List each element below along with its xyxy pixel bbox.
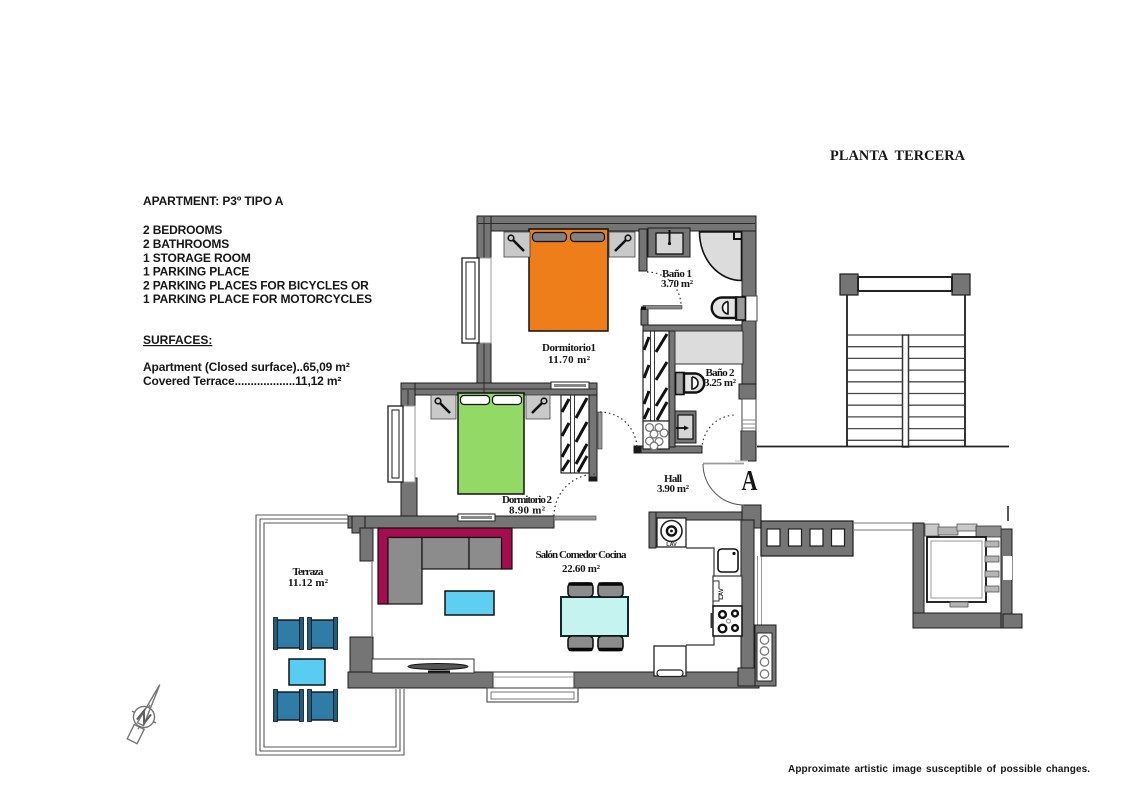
svg-text:SURFACES:: SURFACES:: [143, 333, 212, 347]
svg-text:2 BATHROOMS: 2 BATHROOMS: [143, 237, 229, 251]
svg-text:Salón Comedor Cocina: Salón Comedor Cocina: [536, 549, 628, 561]
svg-text:3.25 m²: 3.25 m²: [704, 377, 737, 389]
svg-text:1 PARKING PLACE: 1 PARKING PLACE: [143, 265, 249, 279]
svg-text:Approximate artistic image sus: Approximate artistic image susceptible o…: [788, 764, 1090, 775]
svg-text:8.90 m²: 8.90 m²: [509, 505, 546, 517]
svg-text:LAV: LAV: [666, 542, 677, 548]
svg-text:2 PARKING PLACES FOR BICYCLES: 2 PARKING PLACES FOR BICYCLES OR: [143, 279, 369, 293]
svg-text:3.70 m²: 3.70 m²: [661, 278, 694, 290]
svg-text:2 BEDROOMS: 2 BEDROOMS: [143, 223, 222, 237]
svg-text:3.90 m²: 3.90 m²: [657, 483, 690, 495]
svg-text:1 STORAGE ROOM: 1 STORAGE ROOM: [143, 251, 251, 265]
svg-text:11.70 m²: 11.70 m²: [548, 354, 591, 366]
svg-text:APARTMENT: P3º TIPO A: APARTMENT: P3º TIPO A: [143, 194, 284, 208]
svg-text:11.12 m²: 11.12 m²: [288, 577, 329, 589]
svg-text:LAV: LAV: [719, 588, 725, 600]
svg-text:PLANTA TERCERA: PLANTA TERCERA: [830, 148, 966, 164]
svg-text:Apartment (Closed surface)..65: Apartment (Closed surface)..65,09 m²: [143, 360, 350, 374]
svg-text:1 PARKING PLACE FOR MOTORCYCLE: 1 PARKING PLACE FOR MOTORCYCLES: [143, 292, 372, 306]
svg-text:Dormitorio1: Dormitorio1: [542, 342, 596, 354]
svg-text:A: A: [742, 466, 759, 497]
svg-text:22.60 m²: 22.60 m²: [562, 563, 601, 575]
svg-text:Covered Terrace...............: Covered Terrace...................11,12 …: [143, 374, 341, 388]
